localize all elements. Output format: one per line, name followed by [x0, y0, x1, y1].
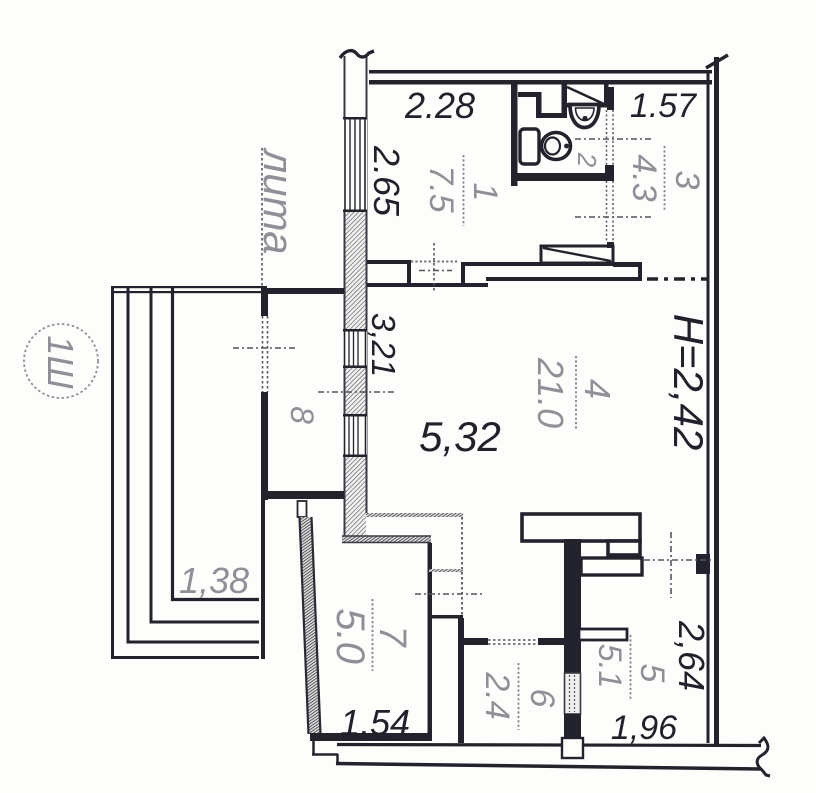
- svg-text:лита: лита: [255, 147, 302, 255]
- svg-text:7.5: 7.5: [422, 165, 460, 212]
- svg-text:H=2,42: H=2,42: [665, 314, 712, 451]
- svg-text:2: 2: [572, 152, 602, 168]
- svg-text:1Ш: 1Ш: [40, 335, 81, 389]
- svg-text:1,96: 1,96: [611, 709, 677, 747]
- svg-text:1.57: 1.57: [630, 87, 697, 125]
- svg-text:1,54: 1,54: [340, 702, 410, 743]
- svg-text:6: 6: [523, 689, 561, 708]
- svg-text:4: 4: [577, 379, 618, 399]
- svg-text:7: 7: [371, 625, 413, 648]
- svg-text:1: 1: [466, 183, 504, 202]
- svg-text:2.65: 2.65: [366, 145, 407, 217]
- svg-text:21.0: 21.0: [530, 357, 571, 428]
- svg-text:8: 8: [284, 406, 320, 424]
- svg-text:5.0: 5.0: [328, 608, 372, 664]
- svg-text:5,32: 5,32: [419, 413, 501, 460]
- svg-text:5.1: 5.1: [592, 644, 628, 688]
- svg-text:2.28: 2.28: [404, 85, 475, 126]
- svg-text:5: 5: [633, 664, 671, 683]
- svg-text:1,38: 1,38: [179, 560, 249, 601]
- svg-text:2,64: 2,64: [671, 620, 712, 691]
- svg-text:3,21: 3,21: [365, 313, 402, 377]
- svg-text:2.4: 2.4: [478, 671, 516, 719]
- svg-text:4.3: 4.3: [625, 154, 663, 201]
- svg-text:3: 3: [668, 171, 706, 190]
